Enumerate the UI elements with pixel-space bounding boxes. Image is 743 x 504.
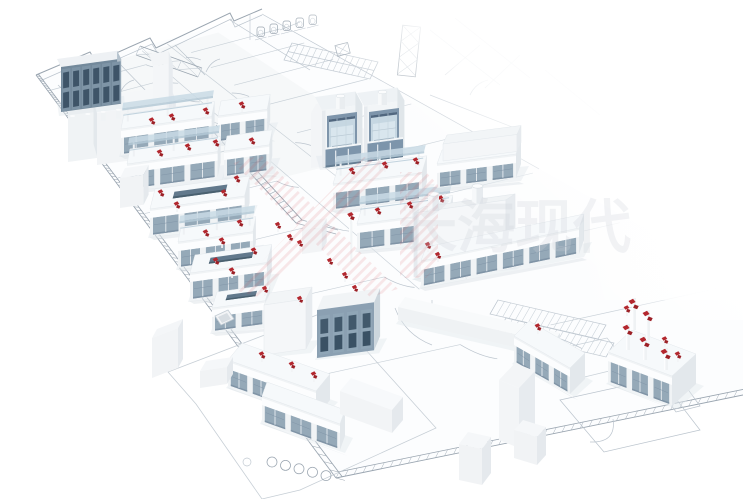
svg-text:长海现代: 长海现代 — [399, 195, 631, 260]
